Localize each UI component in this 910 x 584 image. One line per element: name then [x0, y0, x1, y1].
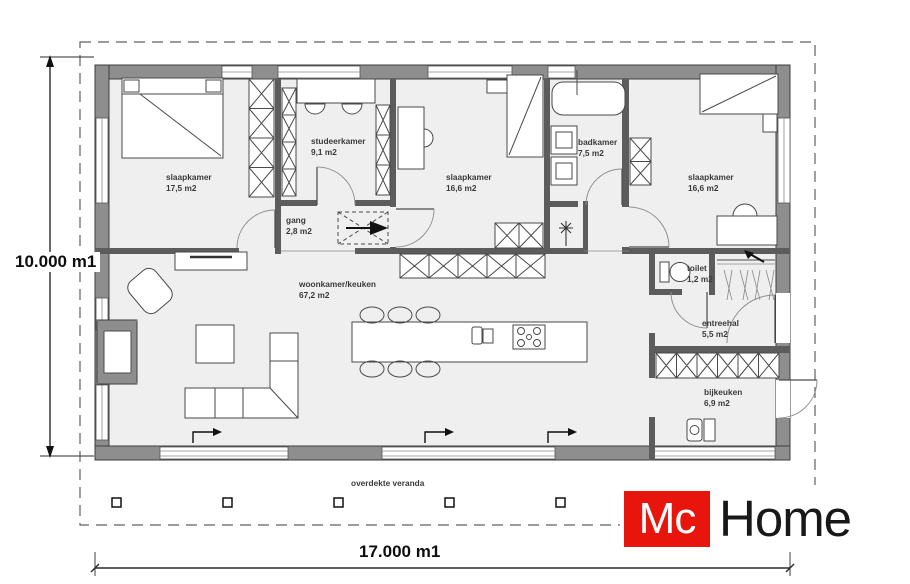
logo-home-text: Home — [719, 489, 851, 548]
room-label-entreehal: entreehal 5,5 m2 — [702, 318, 739, 340]
bedroom1-closet — [249, 79, 274, 197]
study-shelf-right — [376, 105, 390, 195]
bedroom3-closet — [630, 138, 651, 185]
kitchen-island — [352, 322, 587, 362]
mchome-logo: Mc Home — [620, 485, 859, 552]
bedroom2-desk — [398, 107, 424, 169]
nightstand — [763, 114, 777, 132]
tv-sideboard — [175, 252, 247, 270]
room-label-woonkamer-keuken: woonkamer/keuken 67,2 m2 — [299, 279, 376, 301]
logo-mark: Mc — [624, 491, 710, 547]
room-label-slaapkamer-2: slaapkamer 16,6 m2 — [446, 172, 492, 194]
room-label-studeerkamer: studeerkamer 9,1 m2 — [311, 136, 365, 158]
fireplace — [97, 320, 137, 384]
kitchen-cabinet-row — [400, 254, 545, 278]
room-label-gang: gang 2,8 m2 — [286, 215, 312, 237]
room-label-bijkeuken: bijkeuken 6,9 m2 — [704, 387, 742, 409]
floorplan-page: slaapkamer 17,5 m2 studeerkamer 9,1 m2 g… — [0, 0, 910, 584]
nightstand — [487, 80, 507, 93]
room-label-toilet: toilet 1,2 m2 — [687, 263, 713, 285]
room-label-slaapkamer-1: slaapkamer 17,5 m2 — [166, 172, 212, 194]
utility-closet-row — [656, 353, 779, 378]
toilet-fixtures — [660, 262, 690, 282]
bathtub — [552, 82, 625, 115]
study-desk — [297, 79, 375, 103]
dimension-width-label: 17.000 m1 — [355, 542, 444, 562]
bedroom3-dresser — [717, 216, 777, 245]
room-label-slaapkamer-3: slaapkamer 16,6 m2 — [688, 172, 734, 194]
toilet-tank — [660, 262, 669, 282]
veranda-posts — [112, 498, 565, 507]
washer — [687, 419, 702, 441]
room-label-badkamer: badkamer 7,5 m2 — [578, 137, 617, 159]
bedroom2-closet — [495, 223, 543, 248]
sink — [551, 126, 577, 154]
dryer — [704, 419, 715, 441]
back-door-opening — [776, 380, 790, 418]
study-shelf-left — [282, 88, 296, 196]
coffee-table — [196, 325, 234, 363]
sink — [551, 157, 577, 185]
veranda-label: overdekte veranda — [351, 478, 424, 488]
dimension-height-label: 10.000 m1 — [11, 252, 100, 272]
logo-mc-text: Mc — [639, 494, 696, 544]
entrance-door-opening — [776, 293, 790, 343]
